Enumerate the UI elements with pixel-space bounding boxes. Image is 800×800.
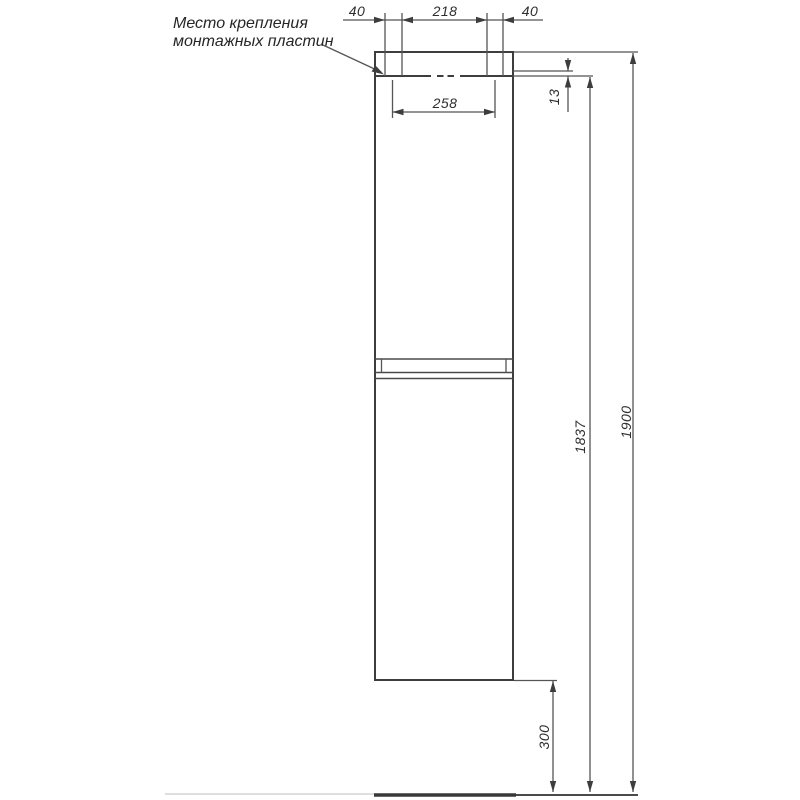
dimension-text-1900: 1900 [618, 405, 634, 438]
arrowhead-right [476, 17, 487, 23]
floor-line [165, 794, 638, 795]
bottom-clearance-dimension-group: 300 [514, 681, 557, 793]
dimension-text-40-left: 40 [349, 3, 366, 19]
arrowhead-left [393, 109, 404, 115]
technical-drawing-canvas: 40 218 40 258 13 1837 [0, 0, 800, 800]
arrowhead-down [587, 781, 593, 792]
dimension-text-218: 218 [432, 3, 458, 19]
center-distance-dimension-group: 258 [393, 80, 496, 118]
arrowhead-down [565, 60, 571, 71]
annotation-label-group: Место крепления монтажных пластин [173, 15, 384, 75]
arrowhead-left [402, 17, 413, 23]
arrowhead-up [550, 681, 556, 692]
cabinet-outline [374, 52, 514, 680]
top-offset-dimension-group: 13 [513, 58, 593, 112]
cabinet-drawing-svg: 40 218 40 258 13 1837 [0, 0, 800, 800]
mounting-height-dimension-group: 1837 [572, 77, 593, 792]
leader-arrowhead [372, 66, 385, 75]
dimension-text-258: 258 [432, 95, 458, 111]
dimension-text-13: 13 [546, 89, 562, 106]
arrowhead-right [374, 17, 385, 23]
dimension-text-40-right: 40 [522, 3, 539, 19]
arrowhead-left [503, 17, 514, 23]
arrowhead-right [484, 109, 495, 115]
arrowhead-up [565, 77, 571, 88]
dimension-text-1837: 1837 [572, 420, 588, 454]
dimension-text-300: 300 [536, 725, 552, 750]
annotation-line1: Место крепления [173, 15, 308, 32]
arrowhead-down [550, 781, 556, 792]
arrowhead-down [630, 781, 636, 792]
arrowhead-up [587, 77, 593, 88]
arrowhead-up [630, 53, 636, 64]
leader-line [323, 45, 381, 72]
annotation-line2: монтажных пластин [173, 33, 334, 50]
